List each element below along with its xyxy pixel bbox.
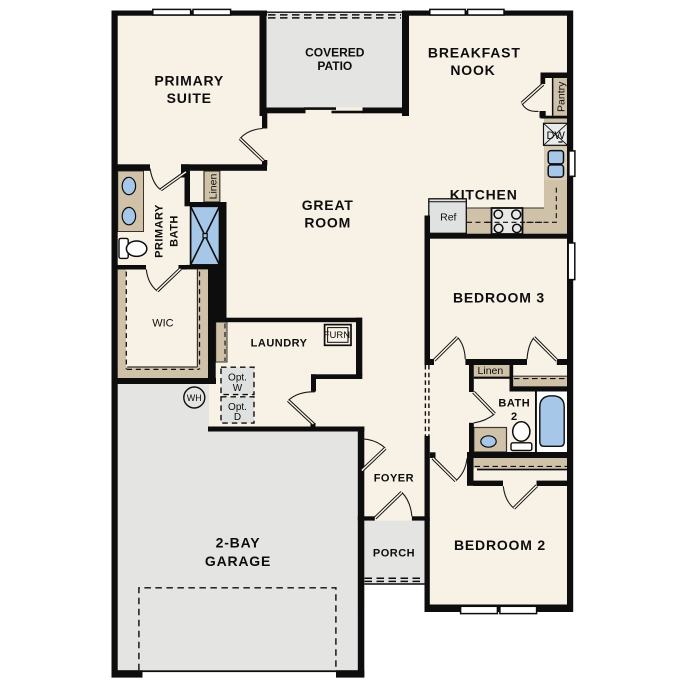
svg-text:ROOM: ROOM xyxy=(304,215,351,231)
svg-text:Opt.: Opt. xyxy=(228,373,247,384)
svg-text:NOOK: NOOK xyxy=(450,62,495,78)
svg-text:SUITE: SUITE xyxy=(167,90,212,106)
svg-text:LAUNDRY: LAUNDRY xyxy=(251,337,308,349)
svg-text:PORCH: PORCH xyxy=(373,548,415,560)
svg-text:2-BAY: 2-BAY xyxy=(216,535,261,551)
svg-text:PATIO: PATIO xyxy=(317,59,352,73)
svg-text:WIC: WIC xyxy=(152,318,173,330)
svg-text:GARAGE: GARAGE xyxy=(205,553,271,569)
svg-text:PRIMARY: PRIMARY xyxy=(154,72,224,88)
svg-text:GREAT: GREAT xyxy=(302,197,354,213)
svg-text:Pantry: Pantry xyxy=(556,81,568,112)
svg-text:BEDROOM 3: BEDROOM 3 xyxy=(453,289,545,305)
svg-text:PRIMARY: PRIMARY xyxy=(154,204,166,258)
svg-text:FOYER: FOYER xyxy=(374,472,414,484)
svg-text:Linen: Linen xyxy=(478,365,504,377)
svg-text:2: 2 xyxy=(511,411,518,423)
svg-text:COVERED: COVERED xyxy=(305,45,365,59)
svg-text:Ref: Ref xyxy=(440,211,456,223)
svg-text:BREAKFAST: BREAKFAST xyxy=(428,44,521,60)
svg-text:BEDROOM 2: BEDROOM 2 xyxy=(454,537,546,553)
svg-text:Linen: Linen xyxy=(207,174,219,200)
svg-text:FURN: FURN xyxy=(324,330,351,341)
svg-text:KITCHEN: KITCHEN xyxy=(450,187,518,203)
svg-text:DW: DW xyxy=(547,130,566,142)
svg-text:BATH: BATH xyxy=(498,398,530,410)
svg-text:BATH: BATH xyxy=(169,215,181,247)
svg-text:WH: WH xyxy=(187,393,202,403)
svg-text:D: D xyxy=(234,412,241,423)
svg-text:W: W xyxy=(233,383,243,394)
